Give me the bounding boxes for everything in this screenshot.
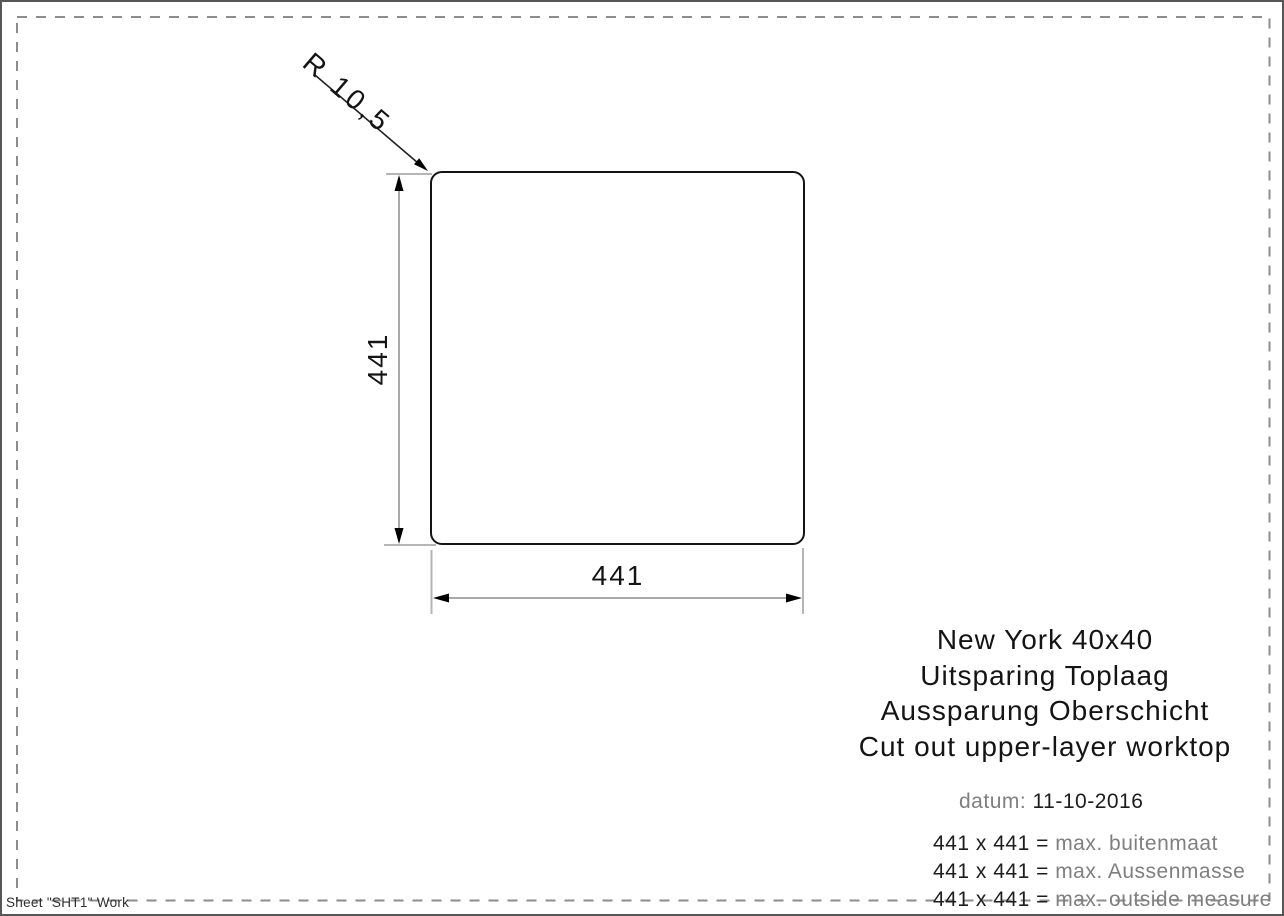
- measure-dims: 441 x 441 =: [933, 860, 1049, 883]
- drawing-sheet: R 10,5 441 441 New York 40x40 Uitsparing…: [0, 0, 1284, 916]
- width-dimension-label: 441: [592, 562, 645, 590]
- radius-leader-arrow-icon: [414, 158, 428, 171]
- height-dim-arrow-up-icon: [395, 175, 404, 191]
- width-dim-arrow-right-icon: [786, 594, 802, 603]
- max-measure-notes: 441 x 441 = max. buitenmaat 441 x 441 = …: [933, 830, 1272, 914]
- product-title: New York 40x40: [810, 622, 1280, 658]
- measure-note-nl: 441 x 441 = max. buitenmaat: [933, 830, 1272, 858]
- measure-label: max. outside measure: [1055, 888, 1272, 911]
- subtitle-german: Aussparung Oberschicht: [810, 693, 1280, 729]
- date-value: 11-10-2016: [1033, 790, 1144, 813]
- measure-dims: 441 x 441 =: [933, 888, 1049, 911]
- measure-dims: 441 x 441 =: [933, 832, 1049, 855]
- measure-note-en: 441 x 441 = max. outside measure: [933, 886, 1272, 914]
- date-line: datum: 11-10-2016: [959, 790, 1143, 814]
- subtitle-english: Cut out upper-layer worktop: [810, 729, 1280, 765]
- date-label: datum:: [959, 790, 1026, 813]
- radius-dimension-label: R 10,5: [298, 48, 397, 139]
- width-dim-arrow-left-icon: [433, 594, 449, 603]
- measure-note-de: 441 x 441 = max. Aussenmasse: [933, 858, 1272, 886]
- sheet-name-label: Sheet "SHT1" Work: [6, 895, 129, 910]
- subtitle-dutch: Uitsparing Toplaag: [810, 658, 1280, 694]
- cutout-outline: [430, 171, 805, 545]
- measure-label: max. Aussenmasse: [1055, 860, 1245, 883]
- measure-label: max. buitenmaat: [1055, 832, 1218, 855]
- title-block: New York 40x40 Uitsparing Toplaag Ausspa…: [810, 622, 1280, 764]
- height-dimension-label: 441: [364, 333, 392, 386]
- height-dim-arrow-down-icon: [395, 528, 404, 544]
